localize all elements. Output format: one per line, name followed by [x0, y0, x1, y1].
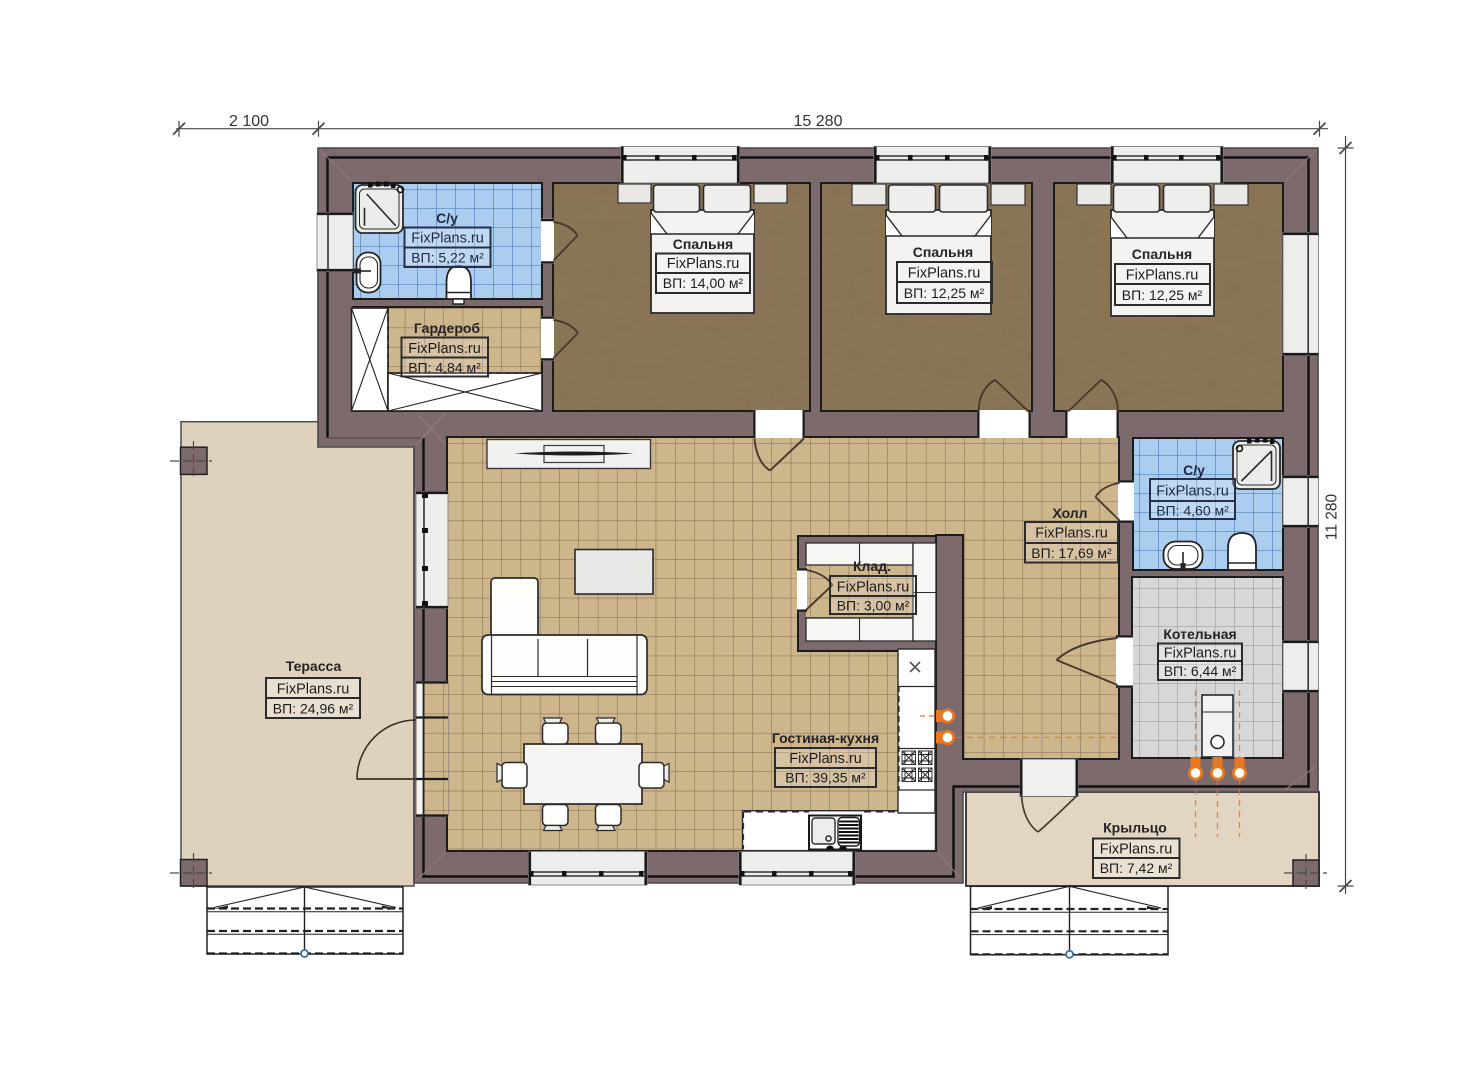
svg-text:FixPlans.ru: FixPlans.ru [1035, 526, 1108, 542]
svg-text:FixPlans.ru: FixPlans.ru [408, 341, 481, 357]
svg-text:ВП: 12,25 м²: ВП: 12,25 м² [1122, 287, 1203, 303]
svg-text:С/у: С/у [1183, 462, 1205, 478]
svg-text:FixPlans.ru: FixPlans.ru [1100, 842, 1173, 858]
svg-text:ВП: 4,84 м²: ВП: 4,84 м² [408, 360, 481, 376]
svg-text:FixPlans.ru: FixPlans.ru [908, 266, 981, 282]
svg-text:Котельная: Котельная [1163, 626, 1236, 642]
svg-text:ВП: 14,00 м²: ВП: 14,00 м² [663, 275, 744, 291]
svg-text:ВП: 5,22 м²: ВП: 5,22 м² [411, 250, 484, 266]
svg-text:FixPlans.ru: FixPlans.ru [789, 751, 862, 767]
svg-text:ВП: 3,00 м²: ВП: 3,00 м² [837, 598, 910, 614]
svg-text:ВП: 6,44 м²: ВП: 6,44 м² [1164, 663, 1237, 679]
svg-text:Спальня: Спальня [1132, 246, 1192, 262]
svg-text:11 280: 11 280 [1324, 493, 1341, 540]
svg-text:Гостиная-кухня: Гостиная-кухня [772, 730, 879, 746]
svg-text:FixPlans.ru: FixPlans.ru [837, 580, 910, 596]
svg-text:Спальня: Спальня [673, 236, 733, 252]
svg-text:ВП: 17,69 м²: ВП: 17,69 м² [1031, 545, 1112, 561]
svg-text:Крыльцо: Крыльцо [1103, 820, 1167, 836]
svg-text:Гардероб: Гардероб [414, 320, 481, 336]
svg-text:Спальня: Спальня [913, 244, 973, 260]
svg-text:ВП: 24,96 м²: ВП: 24,96 м² [273, 701, 354, 717]
svg-text:Терасса: Терасса [286, 658, 342, 674]
svg-text:FixPlans.ru: FixPlans.ru [667, 256, 740, 272]
svg-text:ВП: 4,60 м²: ВП: 4,60 м² [1156, 503, 1229, 519]
svg-text:FixPlans.ru: FixPlans.ru [1126, 268, 1199, 284]
svg-text:Холл: Холл [1052, 505, 1087, 521]
svg-text:ВП: 12,25 м²: ВП: 12,25 м² [904, 285, 985, 301]
svg-text:ВП: 39,35 м²: ВП: 39,35 м² [785, 770, 866, 786]
svg-text:15 280: 15 280 [794, 113, 843, 130]
svg-text:Клад.: Клад. [853, 558, 891, 574]
svg-text:FixPlans.ru: FixPlans.ru [1164, 646, 1237, 662]
svg-text:FixPlans.ru: FixPlans.ru [277, 682, 350, 698]
svg-text:FixPlans.ru: FixPlans.ru [411, 231, 484, 247]
svg-text:2 100: 2 100 [229, 113, 269, 130]
svg-text:ВП: 7,42 м²: ВП: 7,42 м² [1100, 860, 1173, 876]
svg-text:FixPlans.ru: FixPlans.ru [1156, 484, 1229, 500]
svg-text:С/у: С/у [436, 210, 458, 226]
